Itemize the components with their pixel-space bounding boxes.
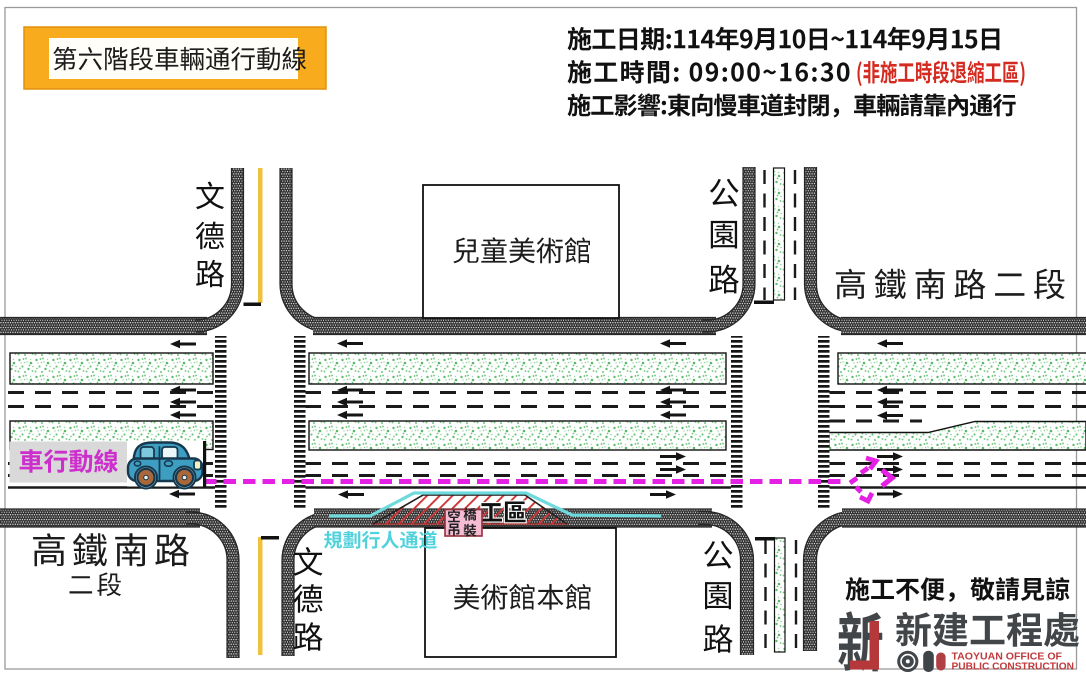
svg-text:PUBLIC CONSTRUCTION: PUBLIC CONSTRUCTION [952,661,1075,672]
